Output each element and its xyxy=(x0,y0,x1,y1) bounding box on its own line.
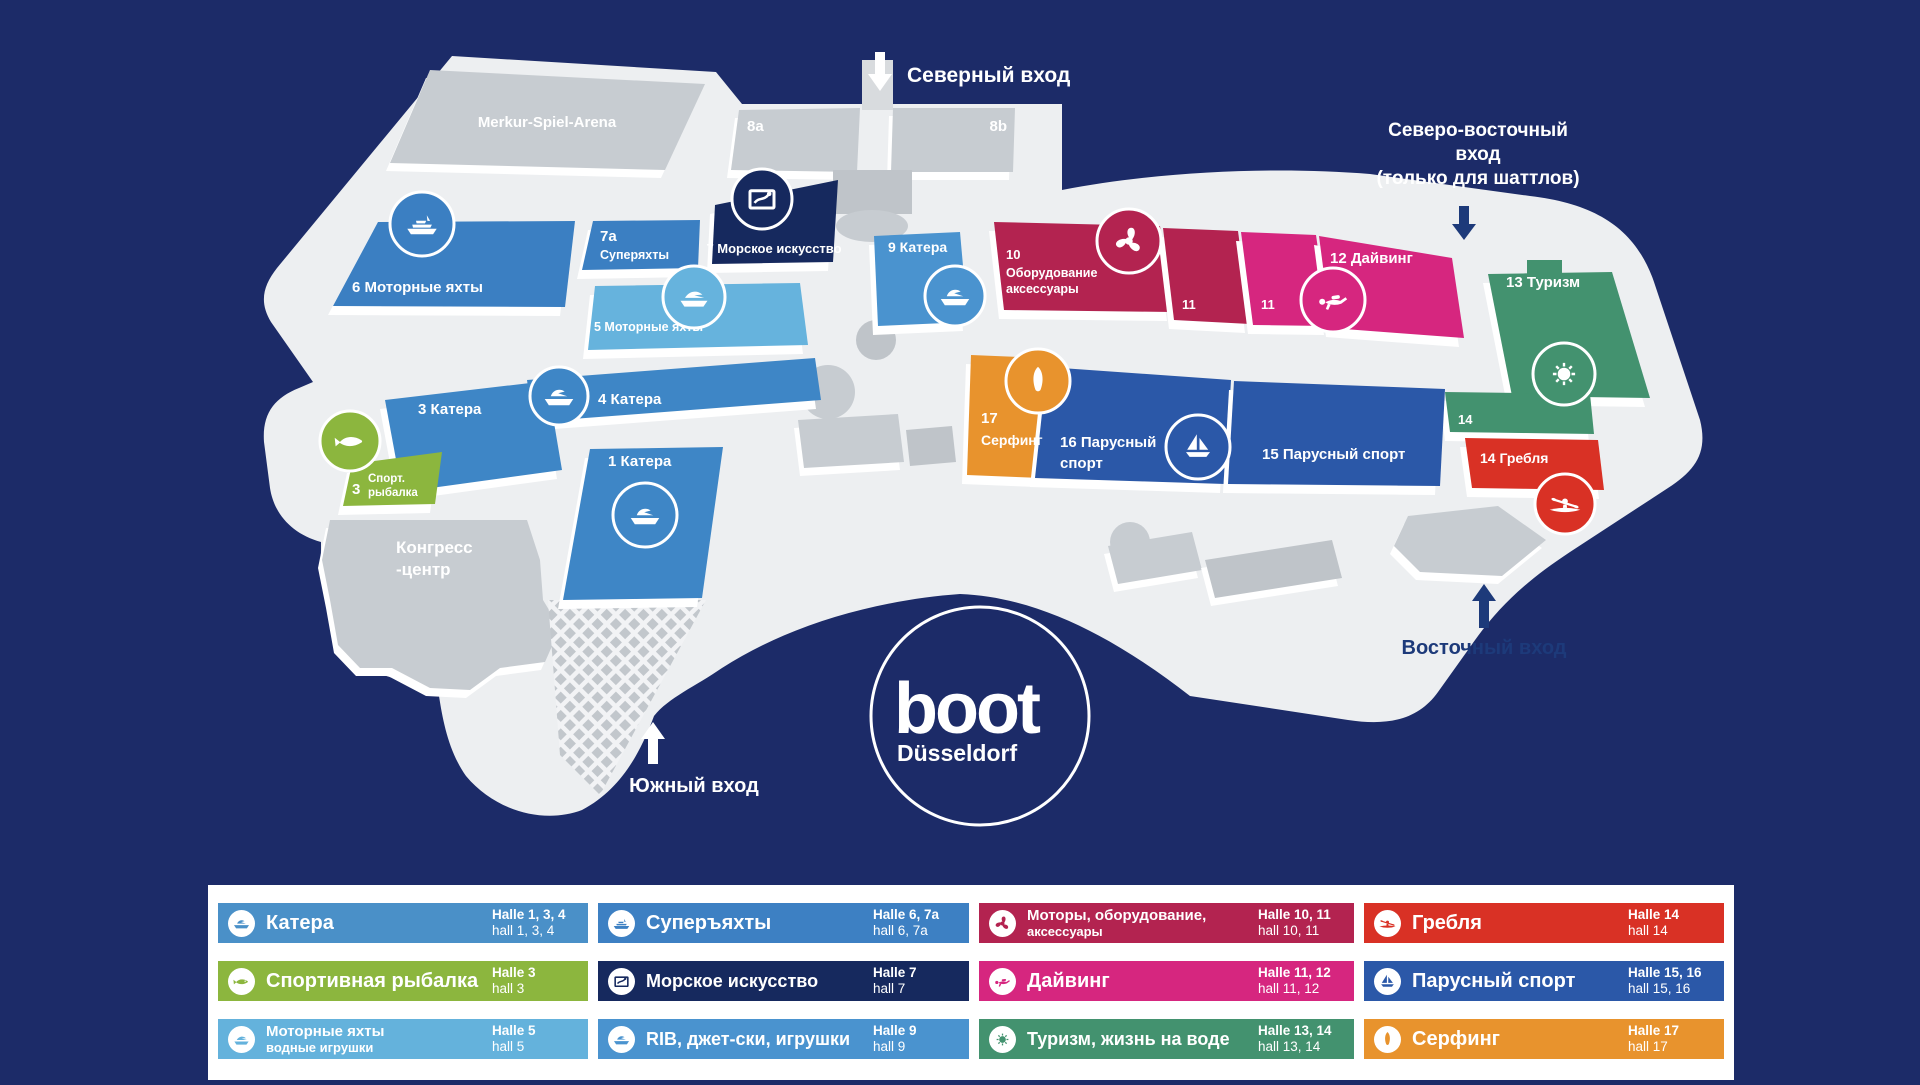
legend-panel: Катера Halle 1, 3, 4hall 1, 3, 4 Спортив… xyxy=(208,885,1734,1080)
legend-hall: hall 6, 7a xyxy=(873,923,961,939)
east-entrance-label: Восточный вход xyxy=(1402,637,1567,659)
motor-yacht-icon xyxy=(663,266,725,328)
legend-hall: hall 11, 12 xyxy=(1258,981,1346,997)
sun-icon xyxy=(989,1026,1016,1053)
hall-16-line2: спорт xyxy=(1060,455,1103,472)
legend-halle: Halle 13, 14 xyxy=(1258,1023,1346,1039)
sailboat-icon xyxy=(1374,968,1401,995)
congress-line1: Конгресс xyxy=(396,538,473,557)
legend-halle: Halle 15, 16 xyxy=(1628,965,1716,981)
legend-item-superyachts: Суперъяхты Halle 6, 7ahall 6, 7a xyxy=(598,903,969,943)
legend-halle: Halle 10, 11 xyxy=(1258,907,1346,923)
legend-item-tourism: Туризм, жизнь на воде Halle 13, 14hall 1… xyxy=(979,1019,1354,1059)
legend-hall: hall 10, 11 xyxy=(1258,923,1346,939)
legend-label: Катера xyxy=(266,912,334,934)
motor-yacht-icon xyxy=(228,1026,255,1053)
south-entrance-label: Южный вход xyxy=(629,775,759,797)
logo-brand: boot xyxy=(894,669,1041,749)
legend-item-surfing: Серфинг Halle 17hall 17 xyxy=(1364,1019,1724,1059)
sun-icon xyxy=(1533,343,1595,405)
legend-label: Спортивная рыбалка xyxy=(266,970,478,992)
hall-3-label: 3 Катера xyxy=(418,401,482,418)
superyacht-icon xyxy=(390,192,454,256)
legend-item-motors: Моторы, оборудование,аксессуары Halle 10… xyxy=(979,903,1354,943)
sea-art-icon xyxy=(732,169,792,229)
fishing-number: 3 xyxy=(352,481,360,498)
fishing-line1: Спорт. xyxy=(368,473,405,485)
legend-halle: Halle 17 xyxy=(1628,1023,1716,1039)
fairground-map-page: Merkur-Spiel-Arena 8a 8b 6 Моторные яхты… xyxy=(0,0,1920,1080)
legend-halle: Halle 14 xyxy=(1628,907,1716,923)
legend-hall: hall 15, 16 xyxy=(1628,981,1716,997)
legend-item-fishing: Спортивная рыбалка Halle 3hall 3 xyxy=(218,961,588,1001)
legend-halle: Halle 5 xyxy=(492,1023,580,1039)
fishing-line2: рыбалка xyxy=(368,487,418,499)
legend-label: Моторные яхты xyxy=(266,1023,384,1040)
motorboat-icon xyxy=(925,266,985,326)
hall-10-line2: аксессуары xyxy=(1006,282,1079,296)
hall-15-label: 15 Парусный спорт xyxy=(1262,446,1405,463)
legend-hall: hall 17 xyxy=(1628,1039,1716,1055)
diver-icon xyxy=(1301,268,1365,332)
legend-label: Моторы, оборудование, xyxy=(1027,907,1206,924)
surfboard-icon xyxy=(1006,349,1070,413)
northeast-entrance-line1: Северо-восточный xyxy=(1388,120,1568,141)
legend-sublabel: аксессуары xyxy=(1027,925,1258,940)
legend-halle: Halle 1, 3, 4 xyxy=(492,907,580,923)
hall-16-line1: 16 Парусный xyxy=(1060,434,1156,451)
legend-label: Морское искусство xyxy=(646,971,818,991)
hall-15 xyxy=(1228,381,1445,486)
hall-7a-number: 7a xyxy=(600,228,617,245)
hall-1-label: 1 Катера xyxy=(608,453,672,470)
hall-14-rowing-label: 14 Гребля xyxy=(1480,450,1548,466)
legend-hall: hall 3 xyxy=(492,981,580,997)
hall-12-label: 12 Дайвинг xyxy=(1330,250,1413,267)
northeast-entrance-line3: (только для шаттлов) xyxy=(1376,168,1579,189)
legend-halle: Halle 7 xyxy=(873,965,961,981)
fish-icon xyxy=(320,411,380,471)
sea-art-icon xyxy=(608,968,635,995)
hall-17-number: 17 xyxy=(981,410,998,427)
legend-halle: Halle 6, 7a xyxy=(873,907,961,923)
legend-halle: Halle 11, 12 xyxy=(1258,965,1346,981)
legend-item-sea-art: Морское искусство Halle 7hall 7 xyxy=(598,961,969,1001)
propeller-icon xyxy=(989,910,1016,937)
diver-icon xyxy=(989,968,1016,995)
legend-item-motor-yachts: Моторные яхтыводные игрушки Halle 5hall … xyxy=(218,1019,588,1059)
hall-8b-label: 8b xyxy=(989,118,1007,135)
legend-label: Туризм, жизнь на воде xyxy=(1027,1029,1230,1049)
legend-item-katera: Катера Halle 1, 3, 4hall 1, 3, 4 xyxy=(218,903,588,943)
legend-label: Парусный спорт xyxy=(1412,970,1575,992)
legend-label: Серфинг xyxy=(1412,1028,1500,1050)
legend-label: Дайвинг xyxy=(1027,970,1110,992)
hall-7-label: 7 Морское искусство xyxy=(706,241,841,256)
propeller-icon xyxy=(1097,209,1161,273)
hall-4-label: 4 Катера xyxy=(598,391,662,408)
kayak-icon xyxy=(1374,910,1401,937)
motorboat-icon xyxy=(228,910,255,937)
logo-city: Düsseldorf xyxy=(897,740,1017,766)
legend-label: Гребля xyxy=(1412,912,1482,934)
rib-boat-icon xyxy=(608,1026,635,1053)
hall-10-number: 10 xyxy=(1006,247,1020,262)
legend-item-rib: RIB, джет-ски, игрушки Halle 9hall 9 xyxy=(598,1019,969,1059)
legend-hall: hall 14 xyxy=(1628,923,1716,939)
legend-item-diving: Дайвинг Halle 11, 12hall 11, 12 xyxy=(979,961,1354,1001)
boot-duesseldorf-logo: boot Düsseldorf xyxy=(871,607,1089,825)
legend-hall: hall 1, 3, 4 xyxy=(492,923,580,939)
legend-hall: hall 9 xyxy=(873,1039,961,1055)
fish-icon xyxy=(228,968,255,995)
sailboat-icon xyxy=(1166,415,1230,479)
hall-11-west xyxy=(1163,228,1250,324)
legend-item-sailing: Парусный спорт Halle 15, 16hall 15, 16 xyxy=(1364,961,1724,1001)
hall-13-label: 13 Туризм xyxy=(1506,274,1580,291)
kayak-icon xyxy=(1535,474,1595,534)
hall-8a-label: 8a xyxy=(747,118,764,135)
north-entrance-label: Северный вход xyxy=(907,64,1070,87)
hall-9-label: 9 Катера xyxy=(888,239,947,255)
northeast-entrance-line2: вход xyxy=(1455,144,1500,165)
motorboat-icon xyxy=(613,483,677,547)
hall-6-label: 6 Моторные яхты xyxy=(352,279,483,296)
superyacht-icon xyxy=(608,910,635,937)
motorboat-icon xyxy=(530,367,588,425)
legend-halle: Halle 9 xyxy=(873,1023,961,1039)
hall-17-label: Серфинг xyxy=(981,432,1043,448)
congress-line2: -центр xyxy=(396,560,451,579)
north-entrance-building xyxy=(833,170,912,214)
legend-hall: hall 7 xyxy=(873,981,961,997)
arena-label: Merkur-Spiel-Arena xyxy=(478,114,617,131)
hall-14-label: 14 xyxy=(1458,412,1473,427)
legend-hall: hall 13, 14 xyxy=(1258,1039,1346,1055)
hall-7a-label: Суперяхты xyxy=(600,248,669,262)
legend-grid: Катера Halle 1, 3, 4hall 1, 3, 4 Спортив… xyxy=(218,903,1734,1059)
legend-halle: Halle 3 xyxy=(492,965,580,981)
legend-sublabel: водные игрушки xyxy=(266,1041,492,1056)
hall-11-east-label: 11 xyxy=(1261,297,1275,312)
surfboard-icon xyxy=(1374,1026,1401,1053)
hall-11-west-label: 11 xyxy=(1182,297,1196,312)
legend-label: Суперъяхты xyxy=(646,912,771,934)
legend-hall: hall 5 xyxy=(492,1039,580,1055)
legend-label: RIB, джет-ски, игрушки xyxy=(646,1029,850,1049)
hall-10-line1: Оборудование xyxy=(1006,266,1097,280)
legend-item-rowing: Гребля Halle 14hall 14 xyxy=(1364,903,1724,943)
